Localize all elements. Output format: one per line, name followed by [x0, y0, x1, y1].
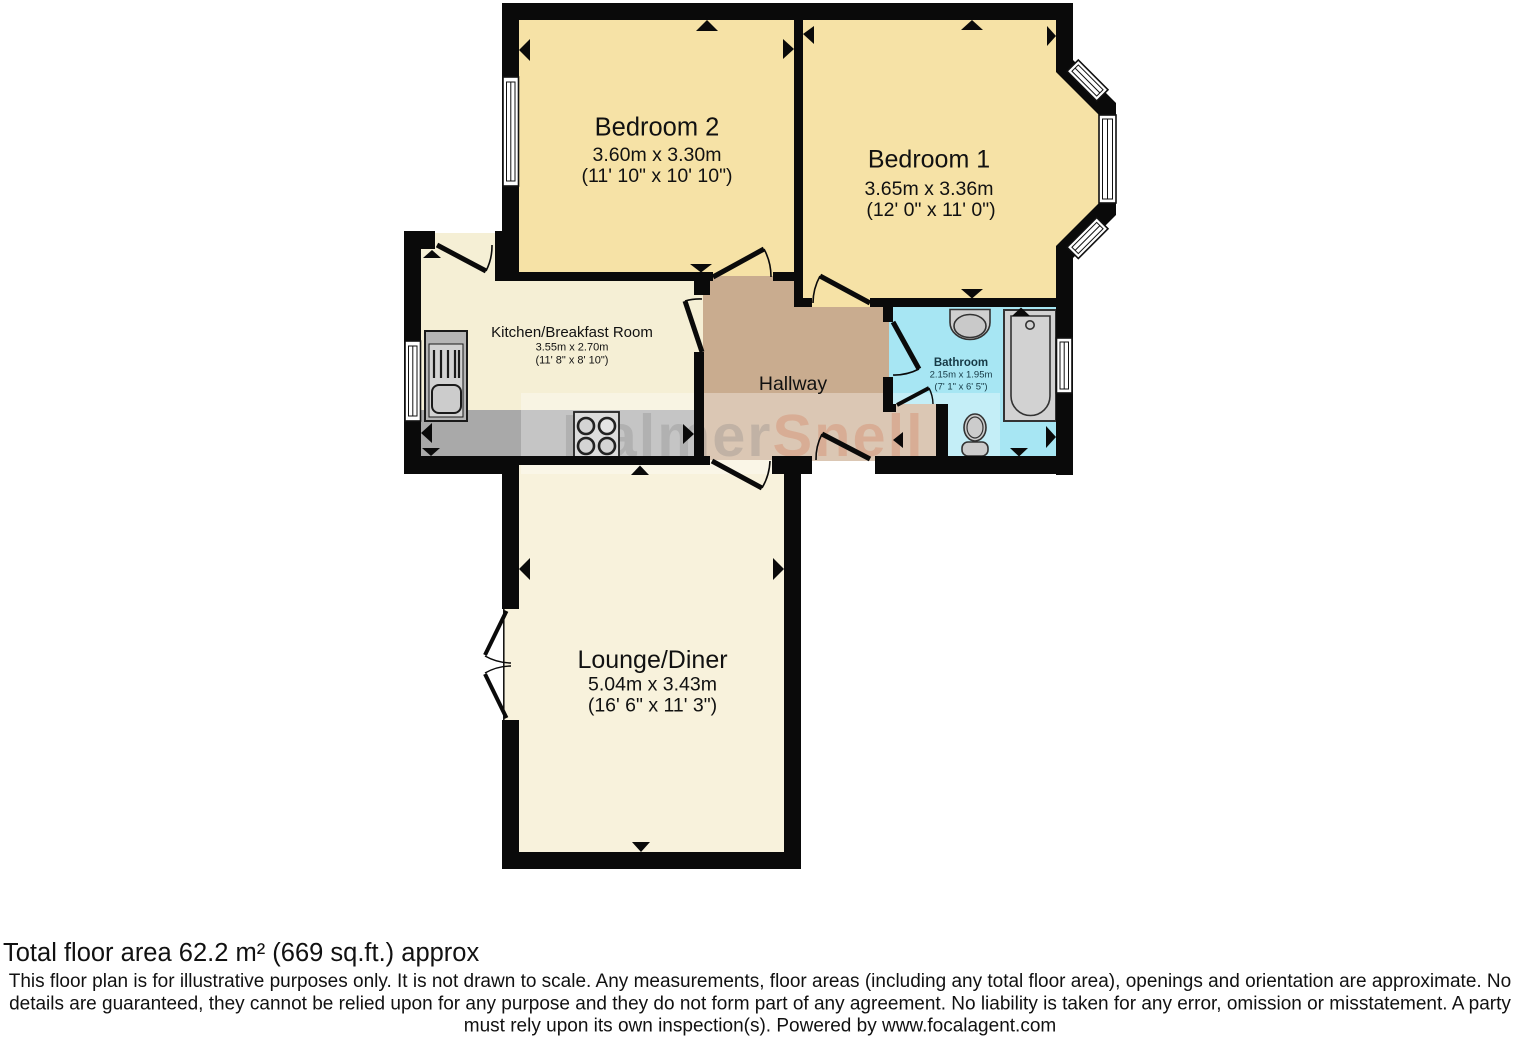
svg-text:Lounge/Diner: Lounge/Diner: [577, 646, 727, 674]
svg-text:details are guaranteed, they c: details are guaranteed, they cannot be r…: [9, 994, 1511, 1015]
svg-text:5.04m x 3.43m: 5.04m x 3.43m: [588, 674, 717, 696]
svg-text:must rely upon its own inspect: must rely upon its own inspection(s). Po…: [464, 1016, 1056, 1037]
svg-text:This floor plan is for illustr: This floor plan is for illustrative purp…: [9, 971, 1511, 992]
svg-text:(11' 10" x 10' 10"): (11' 10" x 10' 10"): [581, 165, 732, 187]
svg-text:(7' 1" x 6' 5"): (7' 1" x 6' 5"): [934, 382, 987, 393]
svg-text:Bedroom 1: Bedroom 1: [868, 146, 990, 174]
svg-text:Hallway: Hallway: [759, 373, 828, 395]
svg-text:(12' 0" x 11' 0"): (12' 0" x 11' 0"): [866, 199, 995, 221]
svg-text:3.65m x 3.36m: 3.65m x 3.36m: [865, 178, 994, 200]
svg-text:Kitchen/Breakfast Room: Kitchen/Breakfast Room: [491, 324, 653, 341]
svg-text:Bathroom: Bathroom: [934, 357, 988, 369]
svg-text:(11' 8" x 8' 10"): (11' 8" x 8' 10"): [536, 355, 609, 367]
svg-text:3.55m x 2.70m: 3.55m x 2.70m: [536, 342, 609, 354]
svg-text:Bedroom 2: Bedroom 2: [595, 114, 720, 142]
svg-text:3.60m x 3.30m: 3.60m x 3.30m: [593, 144, 722, 166]
svg-text:Total floor area 62.2 m² (669: Total floor area 62.2 m² (669 sq.ft.) ap…: [3, 939, 479, 967]
svg-text:(16' 6" x 11' 3"): (16' 6" x 11' 3"): [588, 695, 717, 717]
svg-text:2.15m x 1.95m: 2.15m x 1.95m: [930, 370, 993, 381]
